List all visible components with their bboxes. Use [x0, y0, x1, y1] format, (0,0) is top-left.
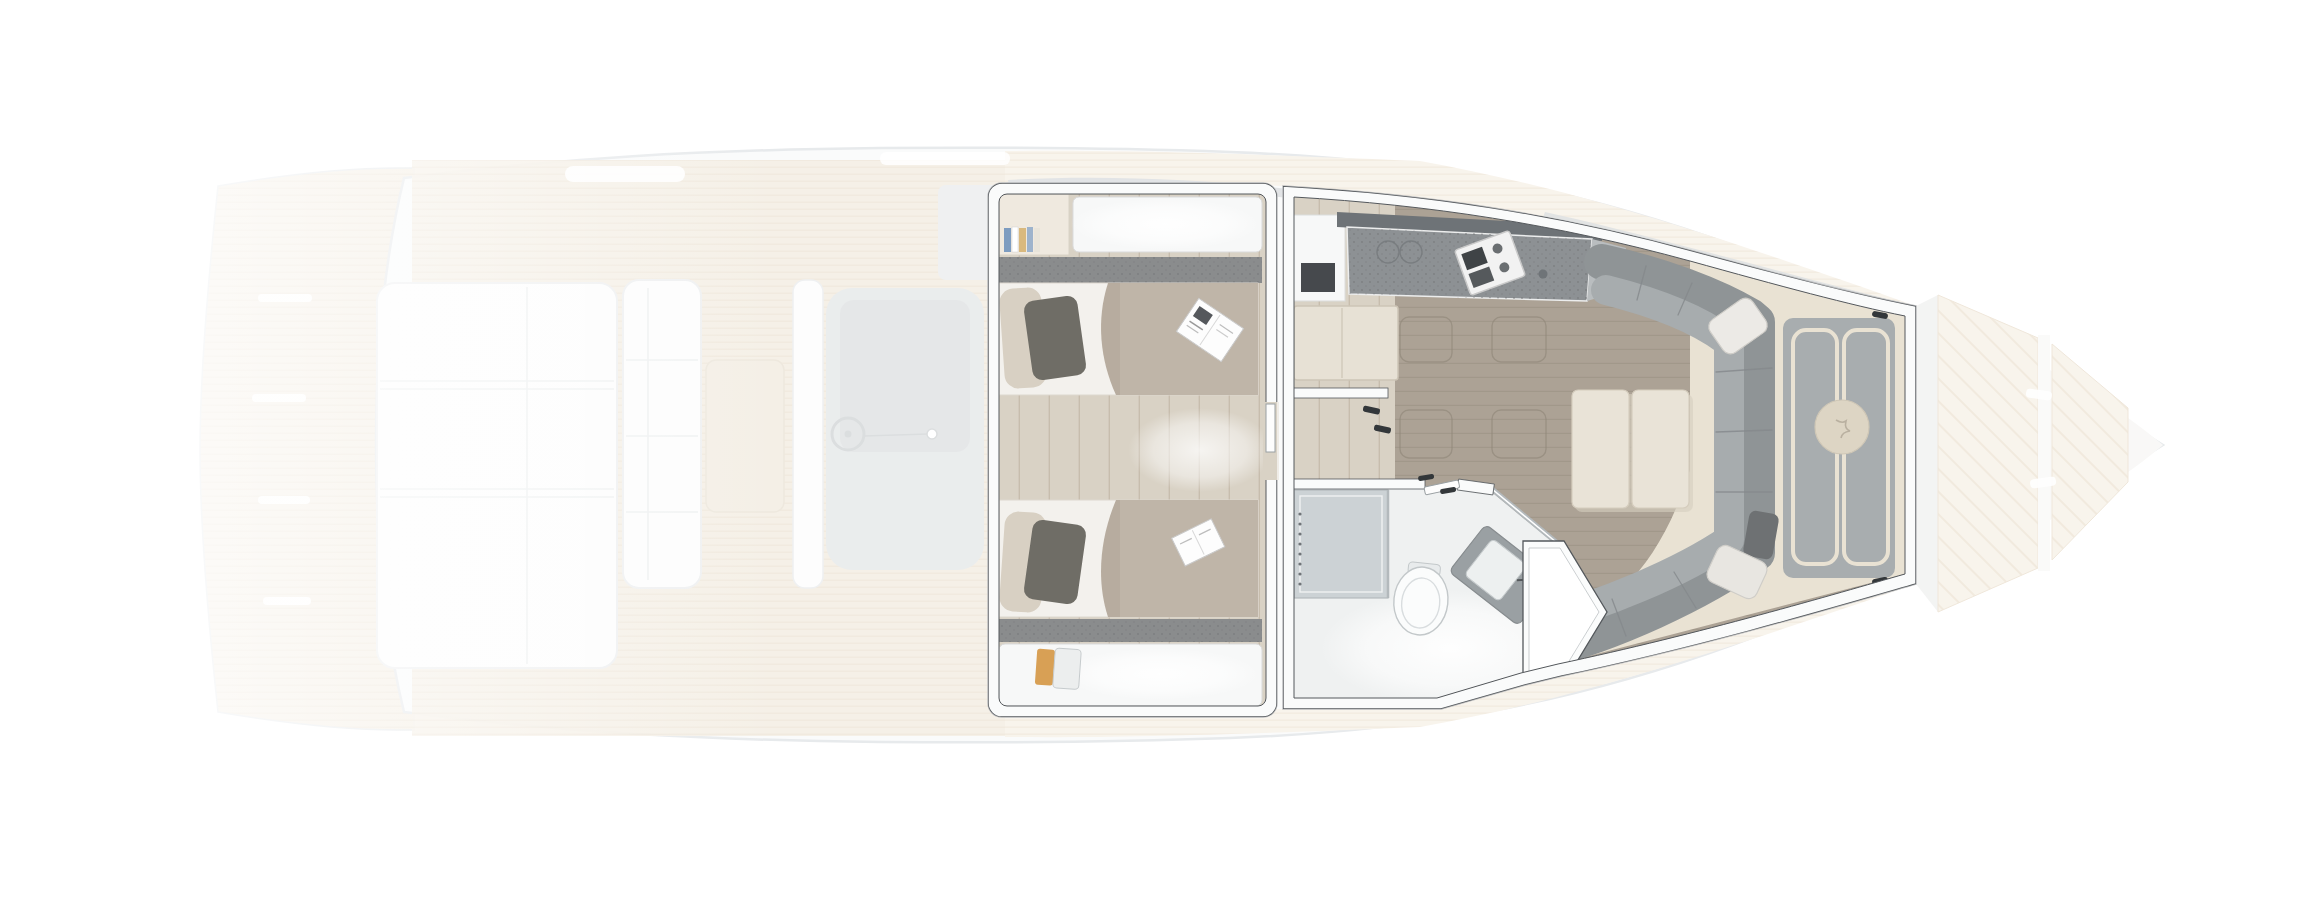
pillow-dark-bottom: [1023, 519, 1088, 606]
galley-knob: [1539, 270, 1548, 279]
pillow-dark-top: [1023, 295, 1088, 382]
mid-cabin: [988, 183, 1279, 717]
galley-appliance: [1301, 263, 1335, 292]
mid-cabin-door-leaf: [1266, 404, 1275, 452]
salon-table: [1572, 390, 1693, 512]
twin-berth-top: [999, 283, 1258, 395]
floorplan-svg: [0, 0, 2303, 904]
yacht-floorplan-canvas: [0, 0, 2303, 904]
bathroom-wall: [1288, 479, 1425, 489]
twin-berth-bottom: [999, 500, 1258, 617]
fade-left-gradient: [0, 0, 780, 904]
step-stool: [1035, 647, 1082, 690]
carpet-texture-top: [999, 257, 1262, 283]
companionway-desk: [1294, 306, 1398, 380]
wardrobe-bottom-glow: [1060, 648, 1260, 700]
walkway-glow: [1128, 408, 1272, 492]
books: [1004, 227, 1040, 252]
desk-wall-stub: [1288, 388, 1388, 398]
shower: [1294, 490, 1388, 598]
wardrobe-top-glow: [1070, 198, 1260, 250]
round-cushion: [1815, 400, 1869, 454]
bow-berth: [1783, 311, 1895, 586]
carpet-texture-bottom: [999, 619, 1262, 642]
